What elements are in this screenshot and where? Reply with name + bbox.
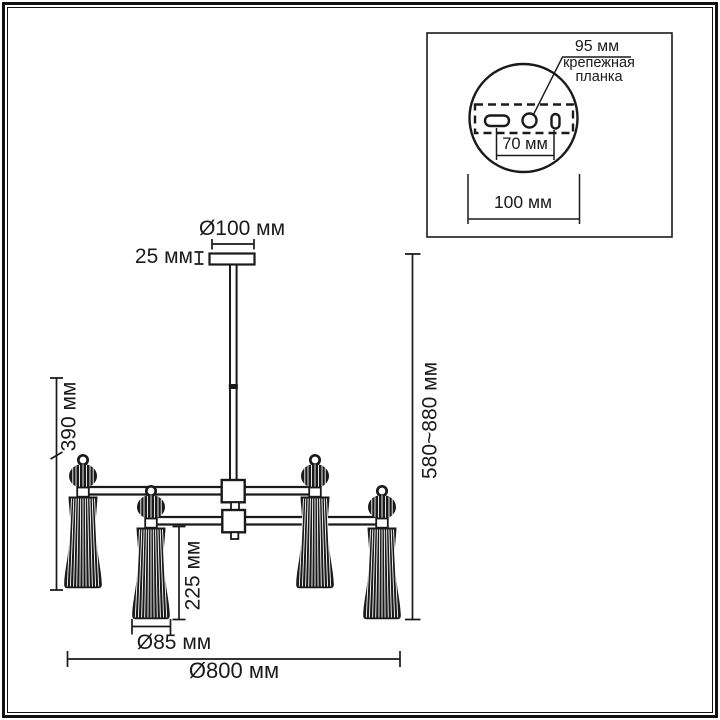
rod-joint (229, 384, 238, 389)
plate-width-label: 95 мм (557, 38, 637, 56)
slot-spacing-label: 70 мм (485, 135, 565, 153)
overall-diameter-label: Ø800 мм (154, 659, 314, 682)
canopy-diameter-label: Ø100 мм (172, 217, 312, 240)
chandelier-fixture (64, 254, 401, 620)
mounting-plate-name-line2: планка (549, 71, 649, 85)
lamp-shade-4 (363, 486, 401, 619)
chandelier-dimension-diagram: Ø100 мм 25 мм 390 мм 225 мм 580~880 мм Ø… (0, 0, 720, 720)
ceiling-canopy (210, 254, 255, 265)
shade-height-label: 225 мм (182, 506, 205, 646)
lamp-shade-3 (296, 455, 334, 588)
shade-diameter-label: Ø85 мм (104, 631, 244, 654)
canopy-diameter-dimension (212, 239, 254, 250)
upper-arm (83, 487, 315, 495)
mounting-slot-left (485, 116, 509, 127)
technical-drawing-canvas (0, 0, 720, 720)
hanging-rod (230, 265, 237, 482)
height-range-label: 580~880 мм (419, 336, 442, 506)
inset-diameter-label: 100 мм (483, 193, 563, 211)
lamp-shade-2 (132, 486, 170, 619)
central-hub (222, 480, 245, 539)
canopy-height-label: 25 мм (109, 245, 193, 268)
center-wire-hole (523, 114, 537, 128)
mounting-plate-name-label: крепежная планка (549, 57, 649, 84)
body-height-label: 390 мм (58, 347, 81, 487)
canopy-height-dimension (195, 252, 204, 264)
mounting-slot-right (552, 114, 560, 129)
